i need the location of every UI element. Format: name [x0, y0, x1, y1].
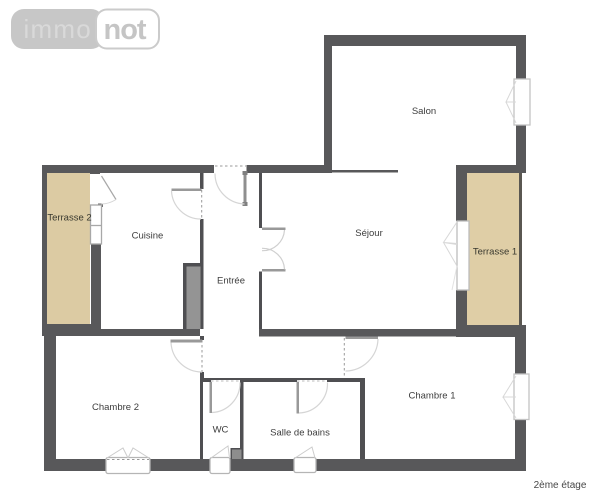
svg-text:Salle de bains: Salle de bains — [270, 428, 330, 439]
svg-text:Séjour: Séjour — [355, 228, 382, 239]
svg-text:Cuisine: Cuisine — [132, 231, 164, 242]
svg-text:Terrasse 2: Terrasse 2 — [47, 213, 91, 224]
svg-text:immo: immo — [24, 14, 92, 44]
svg-text:Salon: Salon — [412, 106, 436, 117]
svg-text:Terrasse 1: Terrasse 1 — [473, 247, 517, 258]
svg-text:not: not — [104, 14, 147, 46]
svg-text:Chambre 1: Chambre 1 — [409, 391, 456, 402]
svg-text:Entrée: Entrée — [217, 276, 245, 287]
svg-text:Chambre 2: Chambre 2 — [92, 402, 139, 413]
svg-text:2ème étage: 2ème étage — [534, 480, 587, 491]
svg-text:WC: WC — [213, 425, 229, 436]
